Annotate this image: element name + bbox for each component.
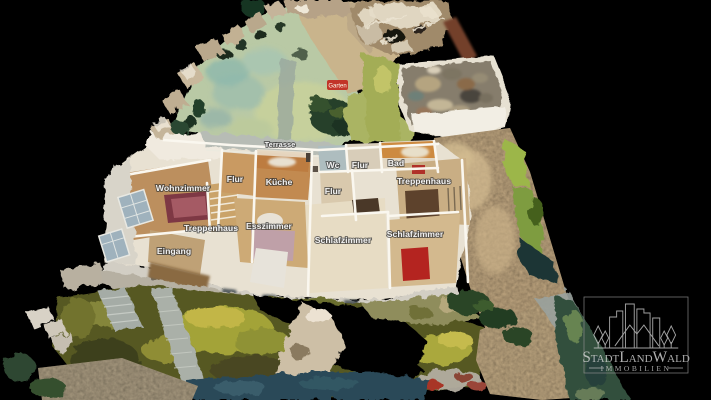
svg-text:IMMOBILIEN: IMMOBILIEN — [601, 364, 672, 373]
svg-text:Wc: Wc — [326, 160, 339, 170]
svg-text:Eingang: Eingang — [157, 246, 191, 256]
svg-text:Terrasse: Terrasse — [265, 140, 296, 149]
svg-text:Schlafzimmer: Schlafzimmer — [315, 235, 372, 245]
svg-text:Garten: Garten — [328, 84, 346, 90]
svg-text:Schlafzimmer: Schlafzimmer — [387, 229, 444, 239]
svg-text:Treppenhaus: Treppenhaus — [397, 176, 451, 186]
svg-text:Wohnzimmer: Wohnzimmer — [156, 183, 211, 193]
svg-text:Flur: Flur — [325, 186, 342, 196]
svg-text:Treppenhaus: Treppenhaus — [184, 223, 238, 233]
svg-text:Bad: Bad — [388, 158, 404, 168]
svg-text:Flur: Flur — [352, 160, 369, 170]
svg-text:Küche: Küche — [266, 177, 293, 187]
svg-text:Esszimmer: Esszimmer — [246, 221, 292, 231]
svg-text:Flur: Flur — [227, 174, 244, 184]
